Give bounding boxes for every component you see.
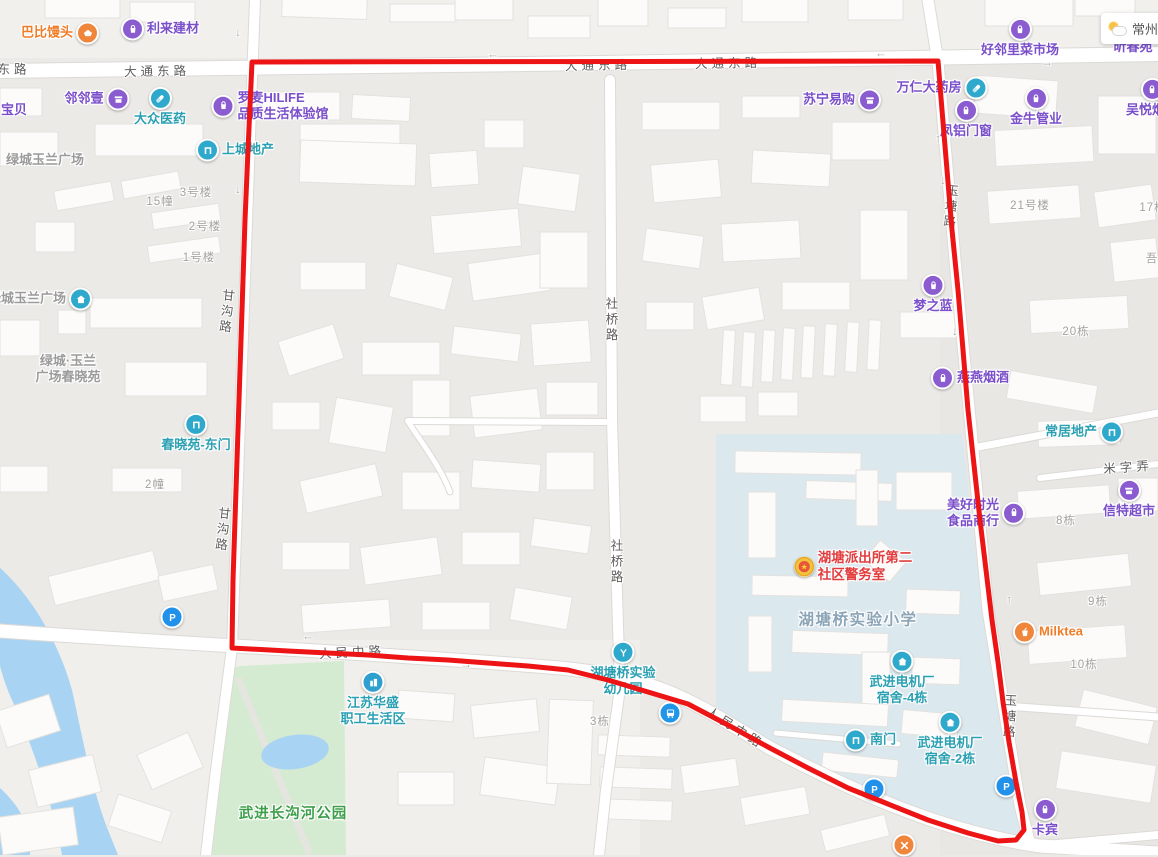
poi-xinte-chaoshi[interactable]: 信特超市 bbox=[1103, 479, 1155, 519]
oneway-arrow-icon: → bbox=[929, 133, 943, 145]
building-icon bbox=[361, 671, 384, 694]
oneway-arrow-icon: → bbox=[950, 326, 964, 338]
oneway-arrow-icon: → bbox=[460, 657, 472, 671]
road-label: 人民中路 bbox=[319, 640, 386, 662]
poi-babi-mantou[interactable]: 巴比馒头 bbox=[21, 22, 99, 45]
poi-parking-2[interactable]: P bbox=[863, 778, 886, 801]
pill-icon bbox=[965, 77, 988, 100]
road-label: 社桥路 bbox=[602, 297, 621, 344]
bus-icon bbox=[659, 702, 682, 725]
road-label: 社桥路 bbox=[607, 539, 626, 586]
kindergarten-icon bbox=[611, 641, 634, 664]
building-label: 2幢 bbox=[145, 476, 165, 492]
road-label: 东路 bbox=[0, 59, 31, 78]
poi-changgou-park[interactable]: 武进长沟河公园 bbox=[239, 805, 348, 823]
door-icon bbox=[196, 139, 219, 162]
poi-lvcheng-chunxiaoyuan[interactable]: 绿城·玉兰广场春晓苑 bbox=[35, 353, 100, 386]
poi-wanren-dayaofang[interactable]: 万仁大药房 bbox=[896, 77, 987, 100]
bag-icon bbox=[921, 274, 944, 297]
building-label: 20栋 bbox=[1062, 323, 1089, 339]
poi-label: 吴悦烟酒 bbox=[1126, 102, 1158, 118]
poi-wujin-dianjichang-dorm4[interactable]: 武进电机厂宿舍-4栋 bbox=[869, 650, 934, 707]
road-label: 甘沟路 bbox=[210, 506, 234, 554]
oneway-arrow-icon: → bbox=[985, 589, 999, 601]
oneway-arrow-icon: → bbox=[875, 50, 887, 64]
bag-icon bbox=[931, 367, 954, 390]
parking-icon: P bbox=[161, 606, 184, 629]
poi-hutangqiao-kindergarten[interactable]: 湖塘桥实验幼儿园 bbox=[590, 641, 655, 698]
poi-label: 美好时光食品商行 bbox=[947, 497, 999, 530]
poi-mengzhilan[interactable]: 梦之蓝 bbox=[913, 274, 952, 314]
weather-city: 常州 bbox=[1132, 19, 1158, 38]
road-label: 甘沟路 bbox=[214, 288, 238, 336]
building-label: 10栋 bbox=[1070, 656, 1097, 672]
building-label: 1号楼 bbox=[183, 249, 215, 265]
poi-label: 利来建材 bbox=[147, 21, 199, 37]
door-icon bbox=[844, 729, 867, 752]
poi-bus-stop[interactable] bbox=[659, 702, 682, 725]
poi-baobei[interactable]: 宝贝 bbox=[1, 102, 27, 118]
building-label: 9栋 bbox=[1088, 593, 1108, 609]
bag-icon bbox=[121, 18, 144, 41]
poi-label: 武进长沟河公园 bbox=[239, 805, 348, 823]
building-label: 8栋 bbox=[1056, 512, 1076, 528]
poi-label: 武进电机厂宿舍-2栋 bbox=[917, 735, 982, 768]
cup-icon bbox=[1013, 621, 1036, 644]
store-icon bbox=[1117, 479, 1140, 502]
poi-shangcheng-dichan[interactable]: 上城地产 bbox=[196, 139, 274, 162]
poi-linlinyi[interactable]: 邻邻壹 bbox=[64, 88, 129, 111]
labels-layer: 巴比馒头利来建材邻邻壹宝贝大众医药罗麦HILIFE品质生活体验馆上城地产绿城玉兰… bbox=[0, 0, 1158, 855]
poi-label: 绿城·玉兰广场春晓苑 bbox=[35, 353, 100, 386]
bag-icon bbox=[1033, 798, 1056, 821]
oneway-arrow-icon: → bbox=[233, 184, 247, 196]
poi-dazhong-yiyao[interactable]: 大众医药 bbox=[134, 87, 186, 127]
poi-label: 凤铝门窗 bbox=[940, 123, 992, 139]
map-canvas[interactable]: 巴比馒头利来建材邻邻壹宝贝大众医药罗麦HILIFE品质生活体验馆上城地产绿城玉兰… bbox=[0, 0, 1158, 855]
poi-haolinli-market[interactable]: 好邻里菜市场 bbox=[981, 18, 1059, 58]
poi-label: 常居地产 bbox=[1045, 424, 1097, 440]
poi-label: 南门 bbox=[870, 732, 896, 748]
bag-icon bbox=[1024, 87, 1047, 110]
house-icon bbox=[69, 288, 92, 311]
poi-lilai-jiancai[interactable]: 利来建材 bbox=[121, 18, 199, 41]
poi-closed-marker[interactable] bbox=[893, 834, 916, 857]
poi-wujin-dianjichang-dorm2[interactable]: 武进电机厂宿舍-2栋 bbox=[917, 711, 982, 768]
poi-wuyue-yanjiu[interactable]: 吴悦烟酒 bbox=[1126, 78, 1158, 118]
poi-label: 苏宁易购 bbox=[803, 92, 855, 108]
close-icon bbox=[893, 834, 916, 857]
road-label: 玉塘路 bbox=[998, 693, 1019, 740]
poi-south-gate[interactable]: 南门 bbox=[844, 729, 896, 752]
oneway-arrow-icon: → bbox=[1000, 594, 1014, 606]
poi-label: 卡宾 bbox=[1032, 822, 1058, 838]
poi-label: 上城地产 bbox=[222, 142, 274, 158]
house-icon bbox=[938, 711, 961, 734]
poi-luomai-hilife[interactable]: 罗麦HILIFE品质生活体验馆 bbox=[211, 90, 328, 123]
poi-label: Milktea bbox=[1039, 624, 1083, 640]
poi-label: 春晓苑-东门 bbox=[161, 437, 230, 453]
police-icon: ★ bbox=[794, 557, 815, 578]
bun-icon bbox=[76, 22, 99, 45]
building-label: 3栋 bbox=[590, 713, 610, 729]
poi-label: 燕燕烟酒 bbox=[957, 370, 1009, 386]
road-label: 大通东路 bbox=[695, 52, 761, 72]
building-label: 3号楼 bbox=[180, 184, 212, 200]
poi-label: 湖塘桥实验小学 bbox=[798, 610, 917, 629]
svg-text:P: P bbox=[1003, 782, 1010, 793]
poi-yanyan-yanjiu[interactable]: 燕燕烟酒 bbox=[931, 367, 1009, 390]
oneway-arrow-icon: → bbox=[1012, 789, 1026, 801]
weather-widget[interactable]: 常州 bbox=[1101, 13, 1158, 44]
svg-text:P: P bbox=[871, 785, 878, 796]
poi-jiangsu-huasheng[interactable]: 江苏华盛职工生活区 bbox=[340, 671, 405, 728]
poi-label: 宝贝 bbox=[1, 102, 27, 118]
poi-label: 湖塘桥实验幼儿园 bbox=[590, 665, 655, 698]
poi-fenglv-menchuang[interactable]: 凤铝门窗 bbox=[940, 99, 992, 139]
poi-changju-dichan[interactable]: 常居地产 bbox=[1045, 421, 1123, 444]
poi-label: 绿城玉兰广场 bbox=[6, 152, 84, 168]
poi-lvcheng-yulan-plaza[interactable]: 绿城玉兰广场 bbox=[0, 288, 92, 311]
store-icon bbox=[107, 88, 130, 111]
road-label: 米字弄 bbox=[1103, 455, 1154, 477]
poi-label: 万仁大药房 bbox=[896, 80, 961, 96]
bag-icon bbox=[1002, 502, 1025, 525]
poi-label: 金牛管业 bbox=[1010, 111, 1062, 127]
building-label: 吾 bbox=[1146, 250, 1158, 266]
poi-kabin[interactable]: 卡宾 bbox=[1032, 798, 1058, 838]
poi-label: 巴比馒头 bbox=[21, 25, 73, 41]
poi-label: 湖塘派出所第二社区警务室 bbox=[818, 550, 913, 584]
building-label: 17栋 bbox=[1139, 199, 1158, 215]
road-label: 人民中路 bbox=[703, 701, 769, 752]
poi-label: 绿城玉兰广场 bbox=[0, 291, 66, 307]
poi-police-room[interactable]: ★湖塘派出所第二社区警务室 bbox=[794, 550, 913, 584]
poi-lvcheng-yulan-plaza-top[interactable]: 绿城玉兰广场 bbox=[6, 152, 84, 168]
poi-jinniu-guanye[interactable]: 金牛管业 bbox=[1010, 87, 1062, 127]
road-label: 玉塘路 bbox=[939, 183, 962, 231]
oneway-arrow-icon: → bbox=[938, 175, 952, 187]
oneway-arrow-icon: → bbox=[302, 633, 314, 647]
poi-hutangqiao-primary-school[interactable]: 湖塘桥实验小学 bbox=[798, 610, 917, 629]
poi-label: 罗麦HILIFE品质生活体验馆 bbox=[237, 90, 328, 123]
pill-icon bbox=[148, 87, 171, 110]
poi-label: 武进电机厂宿舍-4栋 bbox=[869, 674, 934, 707]
building-label: 2号楼 bbox=[189, 218, 221, 234]
oneway-arrow-icon: → bbox=[487, 51, 499, 65]
building-label: 21号楼 bbox=[1010, 197, 1050, 213]
poi-suning-yigou[interactable]: 苏宁易购 bbox=[803, 89, 881, 112]
poi-label: 大众医药 bbox=[134, 111, 186, 127]
oneway-arrow-icon: → bbox=[233, 27, 247, 39]
oneway-arrow-icon: → bbox=[1041, 55, 1053, 69]
road-label: 大通东路 bbox=[565, 54, 631, 74]
poi-label: 江苏华盛职工生活区 bbox=[340, 695, 405, 728]
poi-chunxiaoyuan-east-gate[interactable]: 春晓苑-东门 bbox=[161, 413, 230, 453]
building-label: 15幢 bbox=[146, 193, 173, 209]
house-icon bbox=[890, 650, 913, 673]
poi-label: 邻邻壹 bbox=[64, 91, 103, 107]
bag-icon bbox=[211, 95, 234, 118]
road-label: 大通东路 bbox=[124, 60, 190, 80]
bag-icon bbox=[1140, 78, 1158, 101]
poi-label: 梦之蓝 bbox=[913, 298, 952, 314]
store-icon bbox=[858, 89, 881, 112]
poi-label: 信特超市 bbox=[1103, 503, 1155, 519]
poi-milktea[interactable]: Milktea bbox=[1013, 621, 1083, 644]
bag-icon bbox=[1008, 18, 1031, 41]
poi-parking-1[interactable]: P bbox=[161, 606, 184, 629]
svg-text:P: P bbox=[169, 613, 176, 624]
poi-meihao-shiguang[interactable]: 美好时光食品商行 bbox=[947, 497, 1025, 530]
svg-text:★: ★ bbox=[801, 563, 808, 572]
door-icon bbox=[185, 413, 208, 436]
door-icon bbox=[1100, 421, 1123, 444]
parking-icon: P bbox=[863, 778, 886, 801]
partly-cloudy-icon bbox=[1109, 22, 1126, 36]
bag-icon bbox=[954, 99, 977, 122]
